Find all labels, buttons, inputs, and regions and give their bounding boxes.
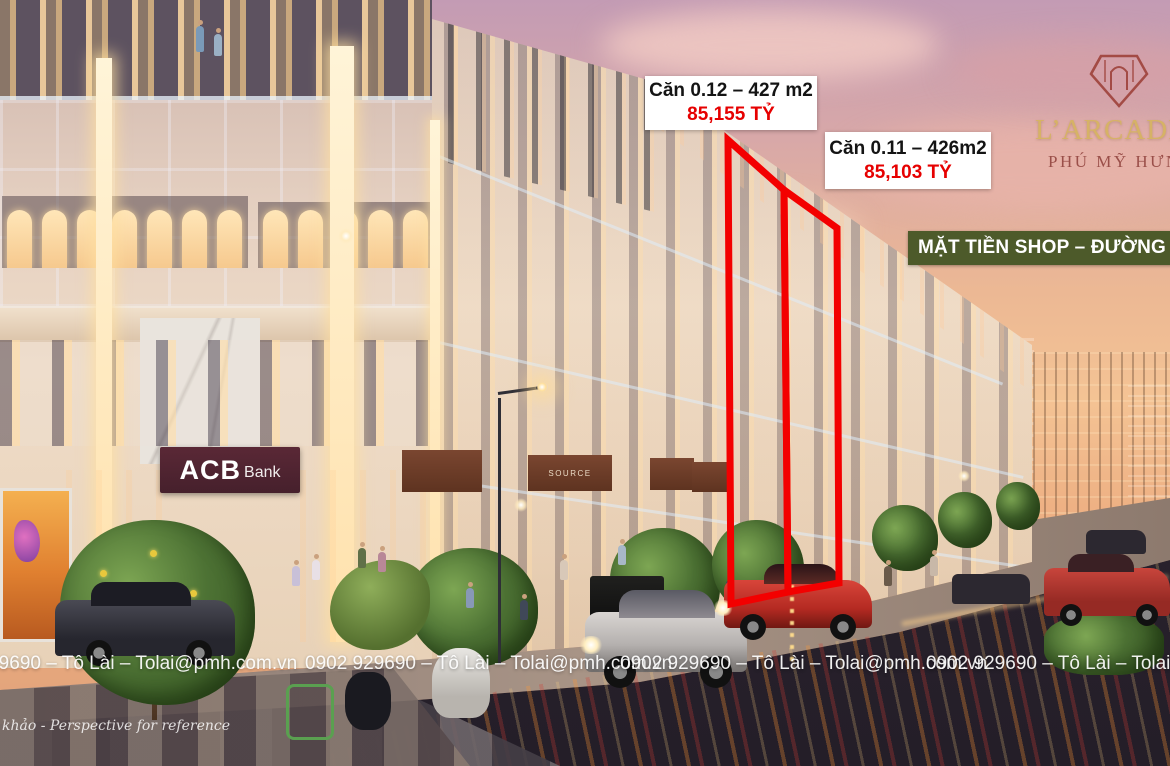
contact-watermark: 0902 929690 – Tô Lài – Tolai@pmh.com.vn	[305, 653, 672, 675]
marketing-slide: ACB Bank SOURCE	[0, 0, 1170, 766]
feature-banner: MẶT TIỀN SHOP – ĐƯỜNG RỘNG	[908, 231, 1170, 265]
unit-highlight-overlay	[0, 0, 1170, 766]
larcade-logo-subtitle: PHÚ MỸ HƯNG	[1048, 152, 1170, 172]
unit-0-11-outline	[784, 190, 839, 592]
larcade-diamond-icon	[1089, 52, 1149, 110]
contact-watermark: 0902 929690 – Tô Lài – Tolai@pmh.com.vn	[926, 653, 1170, 675]
reference-note: khảo - Perspective for reference	[2, 718, 230, 734]
unit-label-0-12: Căn 0.12 – 427 m2 85,155 TỶ	[645, 76, 817, 130]
unit-price: 85,155 TỶ	[645, 103, 817, 127]
unit-label-0-11: Căn 0.11 – 426m2 85,103 TỶ	[825, 132, 991, 189]
unit-name: Căn 0.12 – 427 m2	[645, 79, 817, 103]
unit-price: 85,103 TỶ	[825, 161, 991, 185]
unit-name: Căn 0.11 – 426m2	[825, 137, 991, 161]
feature-banner-text: MẶT TIỀN SHOP – ĐƯỜNG RỘNG	[918, 237, 1170, 259]
larcade-logo-title: L’ARCADE	[1035, 114, 1170, 147]
unit-0-12-outline	[728, 140, 788, 604]
contact-watermark: 0902 929690 – Tô Lài – Tolai@pmh.com.vn	[0, 653, 297, 675]
